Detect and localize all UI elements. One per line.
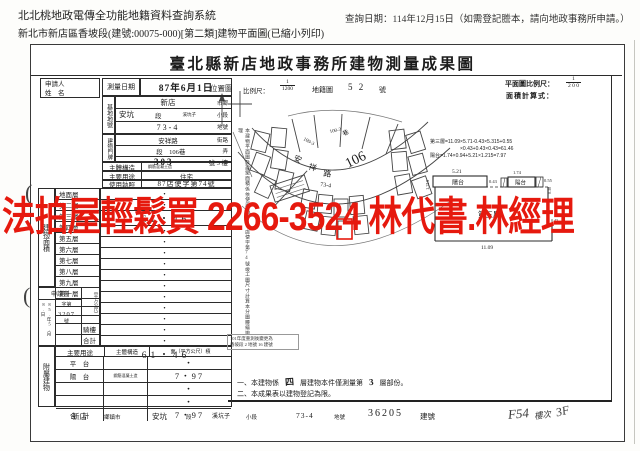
- annex-building-label: 附屬建物: [38, 346, 55, 407]
- floor-name: 騎樓: [56, 324, 99, 335]
- annex-use: 平 台: [56, 357, 104, 369]
- cadastral-sheet-number: 5 2: [348, 82, 365, 92]
- site-subsection-unit: 小段: [217, 111, 228, 119]
- note-2: 二、本成果表以建物登記為限。: [237, 389, 335, 399]
- handwritten-f54: F54: [507, 405, 529, 423]
- rule-under-title: [31, 75, 622, 76]
- door-plate-rows: 安祥路 街路 段 106巷 弄 303 號 3 樓: [115, 134, 232, 162]
- bottom-building-unit: 建號: [420, 411, 435, 422]
- floor-name: 合計: [56, 335, 99, 345]
- usage-label: 主要用途: [103, 172, 142, 179]
- usage-value: 住宅: [142, 172, 231, 179]
- plan-balcony1-label: 陽台: [452, 179, 464, 187]
- annex-header-area: 面（平方公尺）積: [150, 347, 231, 356]
- formula-line-2: ×0.43+0.43×0.43=61.46: [430, 146, 565, 153]
- road-name-char2: 祥: [307, 161, 317, 173]
- inner-right-border: [611, 75, 612, 401]
- annex-table: 主要用途 主體構造 面（平方公尺）積 平 台 ・ 陽 台 鋼筋混凝土造 7・97…: [55, 346, 232, 407]
- site-subsection-value: 溪坑子: [182, 112, 196, 118]
- annex-area: ・: [148, 383, 231, 395]
- parcel-a-label: 109-3: [302, 137, 315, 147]
- site-lot-unit: 地號: [217, 123, 228, 131]
- floor-area-value: ・: [101, 248, 231, 259]
- note-1: 一、本建物係四層建物本件僅測量第3層部份。: [237, 375, 408, 388]
- screen: 北北桃地政電傳全功能地籍資料查詢系統 查詢日期：114年12月15日（如需登記謄…: [0, 0, 640, 451]
- annex-use: [56, 383, 104, 395]
- plan-dim-030: 0.30: [547, 187, 552, 194]
- site-row-1: 新店 市鄉: [116, 97, 231, 109]
- annex-area: ・: [148, 396, 231, 408]
- plan-dim-043a: 0.43: [489, 179, 498, 184]
- plan-dim-1215: 1.215: [425, 179, 430, 190]
- plan-dim-1109: 11.09: [481, 245, 493, 251]
- floor-area-value: ・: [101, 303, 231, 314]
- annex-structure: [104, 357, 148, 369]
- annex-row: 平 台 ・: [56, 357, 231, 370]
- bottom-building-number: 36205: [368, 408, 403, 419]
- subject-parcel-label: 73-4: [320, 182, 332, 189]
- cadastral-map-word: 地籍圖: [312, 85, 333, 95]
- bottom-township-unit: 鄉鎮市: [104, 413, 121, 421]
- structure-label: 主體構造: [103, 163, 142, 170]
- bottom-section-unit: 段: [186, 413, 192, 421]
- door-row-2: 段 106巷 弄: [116, 146, 231, 157]
- note1-handwritten-floors: 四: [279, 374, 301, 388]
- annex-structure: 鋼筋混凝土造: [104, 370, 148, 382]
- door-plate-label: 建物門牌: [102, 134, 115, 162]
- floor-area-value: ・: [101, 292, 231, 303]
- lane-number-label: 106: [343, 149, 368, 172]
- annex-use: 陽 台: [56, 370, 104, 382]
- note1-mid: 層建物本件僅測量第: [300, 379, 363, 387]
- site-parcel-rows: 新店 市鄉 安坑 段 溪坑子 小段 73-4 地號: [115, 96, 232, 134]
- applicant-label-line1: 申請人: [45, 80, 99, 89]
- annex-area: ・: [148, 357, 231, 369]
- plan-scale-denominator: 2 0 0: [566, 82, 581, 90]
- plan-balcony2-label: 陽台: [515, 179, 527, 187]
- bottom-section-value: 安坑: [152, 411, 167, 422]
- license-row: 使用執照 87店使字第74號: [102, 180, 232, 188]
- floor-name: 第八層: [56, 266, 99, 277]
- floor-name: 第七層: [56, 255, 99, 266]
- location-map-label: 位置圖: [210, 83, 233, 94]
- annex-row: 陽 台 鋼筋混凝土造 7・97: [56, 370, 231, 383]
- bottom-subsection-value: 溪坑子: [212, 411, 230, 420]
- floor-name: 第九層: [56, 277, 99, 288]
- bottom-township-value: 新店: [72, 411, 87, 422]
- annex-use: [56, 396, 104, 408]
- formula-line-1: 第三層=11.09×5.71-0.43×5.315+0.55: [430, 139, 565, 146]
- area-formula-text: 第三層=11.09×5.71-0.43×5.315+0.55 ×0.43+0.4…: [430, 139, 565, 160]
- annex-row: ・: [56, 396, 231, 409]
- lane-word-label: 巷: [341, 128, 350, 138]
- bottom-lot-unit: 地號: [334, 413, 345, 421]
- road-name-char3: 路: [323, 168, 332, 179]
- remeasure-stamp-note: 101年度重測後變更為 香坡段 2 地號 16 建號: [227, 334, 299, 350]
- site-parcel-label: 基地地號: [102, 96, 115, 134]
- cadastral-sheet-unit: 號: [379, 85, 386, 95]
- license-label: 使用執照: [103, 181, 142, 187]
- location-scale-denominator: 1200: [280, 85, 295, 93]
- floor-area-value: ・: [101, 325, 231, 336]
- handwritten-floor-word: 樓次: [533, 408, 552, 422]
- annex-structure: [104, 396, 148, 408]
- door-row-1: 安祥路 街路: [116, 135, 231, 146]
- floor-name: [56, 316, 99, 324]
- remeasure-note-line2: 香坡段 2 地號 16 建號: [230, 342, 296, 348]
- door-street-value: 安祥路: [158, 135, 178, 145]
- structure-value: 鋼筋混凝土造: [142, 163, 231, 170]
- door-street-unit: 街路: [217, 136, 228, 144]
- plan-dim-521: 5.21: [452, 169, 462, 175]
- handwritten-paren-mark: (: [23, 283, 30, 309]
- floor-name: 第六層: [56, 244, 99, 255]
- floor-name: [56, 299, 99, 307]
- note1-pre: 一、本建物係: [237, 379, 279, 387]
- annex-row: ・: [56, 383, 231, 396]
- plan-scale-fraction: 1 2 0 0: [566, 76, 581, 90]
- annex-header-structure: 主體構造: [105, 347, 150, 356]
- annex-header-row: 主要用途 主體構造 面（平方公尺）積: [56, 347, 231, 357]
- site-row-3: 73-4 地號: [116, 122, 231, 133]
- bottom-lot-value: 73-4: [296, 411, 314, 420]
- application-date: 85.年5.月8.日: [39, 300, 52, 344]
- plan-dim-055: 0.55: [544, 178, 553, 183]
- site-section-value: 安坑: [119, 109, 134, 120]
- site-lot-number: 73-4: [157, 123, 180, 132]
- floor-area-value: ・: [101, 281, 231, 292]
- road-name-char1: 安: [292, 153, 303, 165]
- note1-handwritten-level: 3: [363, 376, 380, 387]
- annex-structure: [104, 383, 148, 395]
- document-title: 臺北縣新店地政事務所建物測量成果圖: [150, 52, 495, 74]
- thick-divider-line: [228, 400, 612, 402]
- annex-header-use: 主要用途: [56, 347, 105, 356]
- site-township-unit: 市鄉: [217, 99, 228, 107]
- location-scale-fraction: 1 1200: [280, 79, 295, 93]
- formula-line-3: 陽台=1.74×0.94+5.21×1.215=7.97: [430, 153, 565, 160]
- site-township-value: 新店: [160, 97, 175, 108]
- floor-area-value: ・: [101, 270, 231, 281]
- applicant-name-box: 申請人 姓 名: [40, 78, 100, 98]
- survey-date-label: 測量日期: [102, 78, 140, 96]
- note1-post: 層部份。: [380, 379, 408, 387]
- site-row-2: 安坑 段 溪坑子 小段: [116, 109, 231, 121]
- red-advertisement-watermark: 法拍屋輕鬆買 2266-3524 林代書.林經理: [2, 197, 574, 237]
- floor-name: [56, 307, 99, 315]
- area-formula-label: 面積計算式：: [506, 91, 554, 101]
- plan-dim-174: 1.74: [513, 170, 522, 175]
- door-lane-unit: 弄: [222, 147, 228, 155]
- applicant-label-line2: 姓 名: [45, 89, 99, 98]
- license-value: 87店使字第74號: [142, 181, 231, 187]
- floor-area-value: ・: [101, 314, 231, 325]
- bottom-subsection-unit: 小段: [246, 413, 257, 421]
- floor-name: 第十層: [56, 288, 99, 299]
- door-lane-value: 段 106巷: [156, 146, 185, 156]
- floor-area-value: ・: [101, 259, 231, 270]
- location-scale-label: 比例尺：: [243, 85, 269, 95]
- plan-scale-label: 平面圖比例尺：: [505, 79, 554, 89]
- site-section-word: 段: [155, 110, 162, 120]
- annex-area: 7・97: [148, 370, 231, 382]
